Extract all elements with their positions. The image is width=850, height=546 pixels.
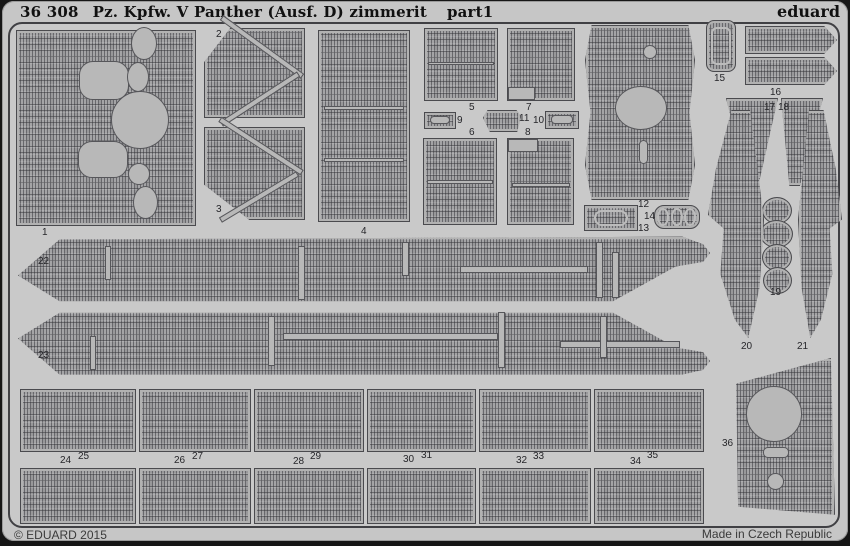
part-number: 12 (638, 200, 649, 210)
part-number: 34 (630, 457, 641, 467)
part-number: 17 (764, 103, 775, 113)
part-cutout (90, 336, 96, 370)
part-cutout (615, 86, 667, 130)
part-number: 9 (457, 116, 463, 126)
part-cutout (684, 208, 696, 226)
part-number: 19 (770, 288, 781, 298)
part-cutout (763, 447, 789, 458)
part-number: 16 (770, 88, 781, 98)
part-number: 35 (647, 451, 658, 461)
part-cutout (79, 61, 129, 100)
fret-part-16 (745, 26, 837, 54)
part-number: 7 (526, 103, 532, 113)
part-cutout (131, 27, 157, 60)
made-in-text: Made in Czech Republic (702, 527, 832, 541)
fret-part-29 (254, 389, 364, 452)
part-number: 24 (60, 456, 71, 466)
fret-part-28 (254, 468, 364, 524)
part-number: 20 (741, 342, 752, 352)
part-number: 29 (310, 452, 321, 462)
part-cutout (78, 141, 128, 178)
fret-part-30 (367, 468, 476, 524)
part-cutout (324, 106, 404, 110)
part-cutout (427, 180, 493, 184)
part-cutout (639, 140, 648, 164)
fret-area: 1234567891011121314151617181920212223252… (0, 0, 850, 546)
part-cutout (402, 242, 409, 276)
part-cutout (551, 115, 573, 124)
part-cutout (430, 116, 450, 124)
part-number: 36 (722, 439, 733, 449)
part-number: 1 (42, 228, 48, 238)
part-number: 28 (293, 457, 304, 467)
fret-part-32 (479, 468, 591, 524)
part-cutout (428, 62, 494, 65)
fret-part-26 (139, 468, 251, 524)
part-number: 32 (516, 456, 527, 466)
part-cutout (612, 252, 619, 298)
part-number: 22 (38, 257, 49, 267)
part-number: 8 (525, 128, 531, 138)
fret-part-4 (318, 30, 410, 222)
fret-part-16 (745, 57, 837, 85)
part-number: 2 (216, 30, 222, 40)
part-number: 18 (778, 103, 789, 113)
part-number: 5 (469, 103, 475, 113)
fret-part-33 (479, 389, 591, 452)
part-cutout (268, 316, 275, 366)
part-cutout (560, 341, 680, 348)
part-cutout (298, 246, 305, 300)
part-number: 30 (403, 455, 414, 465)
part-cutout (596, 242, 603, 298)
part-cutout (128, 163, 150, 185)
fret-part-34 (594, 468, 704, 524)
part-number: 4 (361, 227, 367, 237)
part-cutout (105, 246, 111, 280)
part-number: 6 (469, 128, 475, 138)
photoetch-scan: 36 308Pz. Kpfw. V Panther (Ausf. D) zimm… (0, 0, 850, 546)
fret-part-24 (20, 468, 136, 524)
part-cutout (111, 91, 169, 149)
part-cutout (594, 210, 628, 226)
fret-part-11 (483, 110, 521, 132)
part-number: 33 (533, 452, 544, 462)
part-number: 3 (216, 205, 222, 215)
fret-part-1 (16, 30, 196, 226)
part-cutout (498, 312, 505, 368)
part-cutout (324, 158, 404, 162)
part-cutout (508, 139, 538, 152)
fret-part-27 (139, 389, 251, 452)
part-cutout (671, 208, 683, 226)
part-cutout (283, 333, 498, 340)
part-cutout (767, 473, 784, 490)
fret-part-25 (20, 389, 136, 452)
part-cutout (711, 27, 731, 65)
part-cutout (133, 186, 158, 219)
copyright-text: © EDUARD 2015 (14, 528, 107, 542)
part-cutout (460, 266, 588, 273)
part-number: 25 (78, 452, 89, 462)
fret-part-35 (594, 389, 704, 452)
part-number: 27 (192, 452, 203, 462)
part-number: 26 (174, 456, 185, 466)
part-cutout (600, 316, 607, 358)
part-number: 10 (533, 116, 544, 126)
part-number: 23 (38, 351, 49, 361)
part-cutout (643, 45, 657, 59)
part-cutout (512, 183, 570, 187)
part-number: 31 (421, 451, 432, 461)
part-number: 15 (714, 74, 725, 84)
part-cutout (127, 62, 149, 92)
part-cutout (657, 208, 669, 226)
part-number: 11 (519, 114, 529, 124)
part-cutout (508, 87, 535, 100)
fret-part-22 (18, 236, 710, 304)
part-cutout (746, 386, 802, 442)
part-number: 21 (797, 342, 808, 352)
fret-part-31 (367, 389, 476, 452)
part-number: 14 (644, 212, 655, 222)
part-number: 13 (638, 224, 649, 234)
